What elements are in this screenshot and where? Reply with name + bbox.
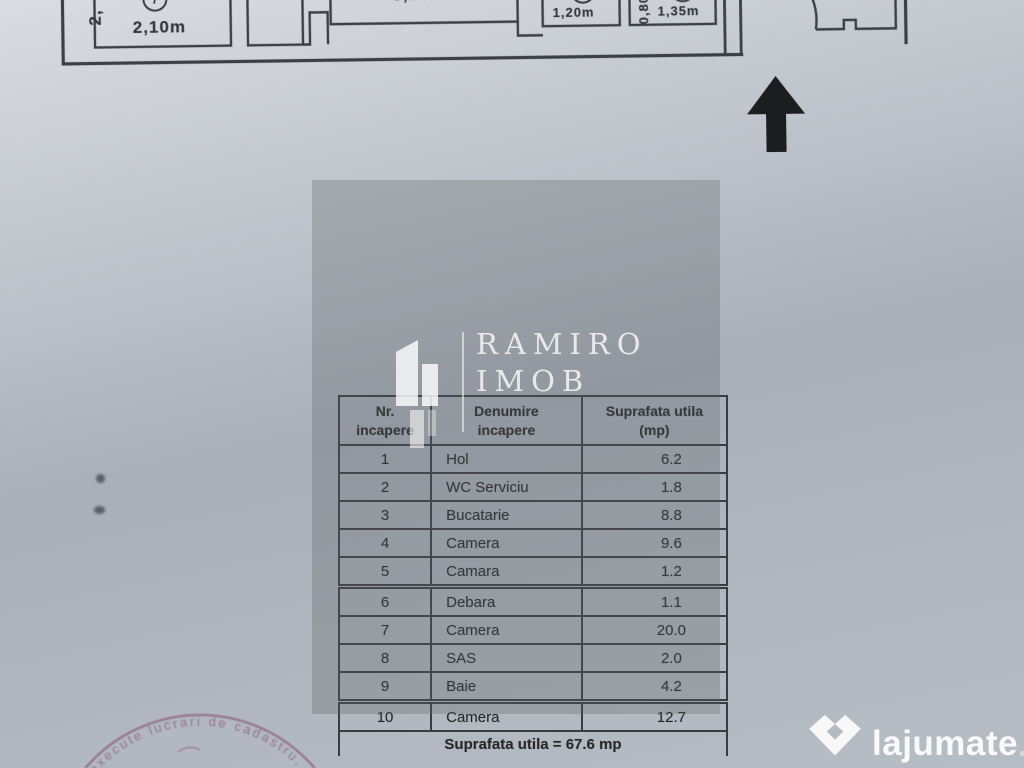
table-body: 1Hol6.22WC Serviciu1.83Bucatarie8.84Came… <box>339 445 727 731</box>
ink-smudge <box>96 474 105 483</box>
table-row: 9Baie4.2 <box>339 672 727 702</box>
room-name: Debara <box>431 587 582 617</box>
room-number: 7 <box>339 616 431 644</box>
room-area: 9.6 <box>582 529 727 557</box>
room-area: 2.0 <box>582 644 727 672</box>
lajumate-heart-icon <box>806 713 864 761</box>
room-number: 9 <box>339 672 431 702</box>
room-area: 8.8 <box>582 501 727 529</box>
table-row: 6Debara1.1 <box>339 587 727 617</box>
room-area: 12.7 <box>582 702 727 732</box>
room-name: WC Serviciu <box>431 473 582 501</box>
table-row: 3Bucatarie8.8 <box>339 501 727 529</box>
room-number: 3 <box>339 501 431 529</box>
dimension-label-135: 1,35m <box>658 3 700 19</box>
brand-tld: .ro <box>1018 728 1024 761</box>
room-number: 1 <box>339 445 431 473</box>
watermark-line1: RAMIRO <box>476 326 648 363</box>
ink-smudge <box>94 506 105 514</box>
table-footer-row: Suprafata utila = 67.6 mp <box>339 731 727 756</box>
watermark-title: RAMIRO IMOB <box>476 326 648 400</box>
room-area: 20.0 <box>582 616 727 644</box>
total-area-label: Suprafata utila = 67.6 mp <box>339 731 727 756</box>
room-area: 4.2 <box>582 672 727 702</box>
room-areas-table: Nr. incapere Denumire incapere Suprafata… <box>338 395 728 756</box>
dimension-label-080: 0,80m <box>636 0 652 24</box>
room-area: 6.2 <box>582 445 727 473</box>
room-name: Camera <box>431 616 582 644</box>
room-name: SAS <box>431 644 582 672</box>
table-row: 5Camara1.2 <box>339 557 727 587</box>
table-row: 1Hol6.2 <box>339 445 727 473</box>
room-number: 8 <box>339 644 431 672</box>
north-arrow-icon <box>745 76 810 153</box>
table-row: 8SAS2.0 <box>339 644 727 672</box>
scanned-floorplan-photo: 2, 7 2,10m 3,50m 6 1,20m 5 0,80m 1,35m N… <box>0 0 1024 768</box>
floorplan-sketch: 2, 7 2,10m 3,50m 6 1,20m 5 0,80m 1,35m <box>57 0 960 186</box>
table-row: 2WC Serviciu1.8 <box>339 473 727 501</box>
table-row: 10Camera12.7 <box>339 702 727 732</box>
room-name: Hol <box>431 445 582 473</box>
brand-name: lajumate <box>872 726 1018 761</box>
dimension-label-120: 1,20m <box>553 5 595 21</box>
room-name: Bucatarie <box>431 501 582 529</box>
table-row: 4Camera9.6 <box>339 529 727 557</box>
room-area: 1.2 <box>582 557 727 587</box>
room-area: 1.8 <box>582 473 727 501</box>
dimension-label-350: 3,50m <box>392 0 445 5</box>
site-logo: lajumate .ro <box>806 713 1024 761</box>
room-number: 10 <box>339 702 431 732</box>
table-row: 7Camera20.0 <box>339 616 727 644</box>
header-suprafata-utila: Suprafata utila (mp) <box>582 396 727 445</box>
floorplan-walls <box>57 0 960 186</box>
room-name: Camara <box>431 557 582 587</box>
room-area: 1.1 <box>582 587 727 617</box>
room-name: Baie <box>431 672 582 702</box>
room-number: 4 <box>339 529 431 557</box>
room-name: Camera <box>431 702 582 732</box>
room-number: 5 <box>339 557 431 587</box>
room-name: Camera <box>431 529 582 557</box>
header-denumire-incapere: Denumire incapere <box>431 396 582 445</box>
room-number: 2 <box>339 473 431 501</box>
dimension-label-vertical-left: 2, <box>86 9 106 25</box>
table-header-row: Nr. incapere Denumire incapere Suprafata… <box>339 396 727 445</box>
header-nr-incapere: Nr. incapere <box>339 396 431 445</box>
room-number: 6 <box>339 587 431 617</box>
dimension-label-210: 2,10m <box>133 17 186 38</box>
